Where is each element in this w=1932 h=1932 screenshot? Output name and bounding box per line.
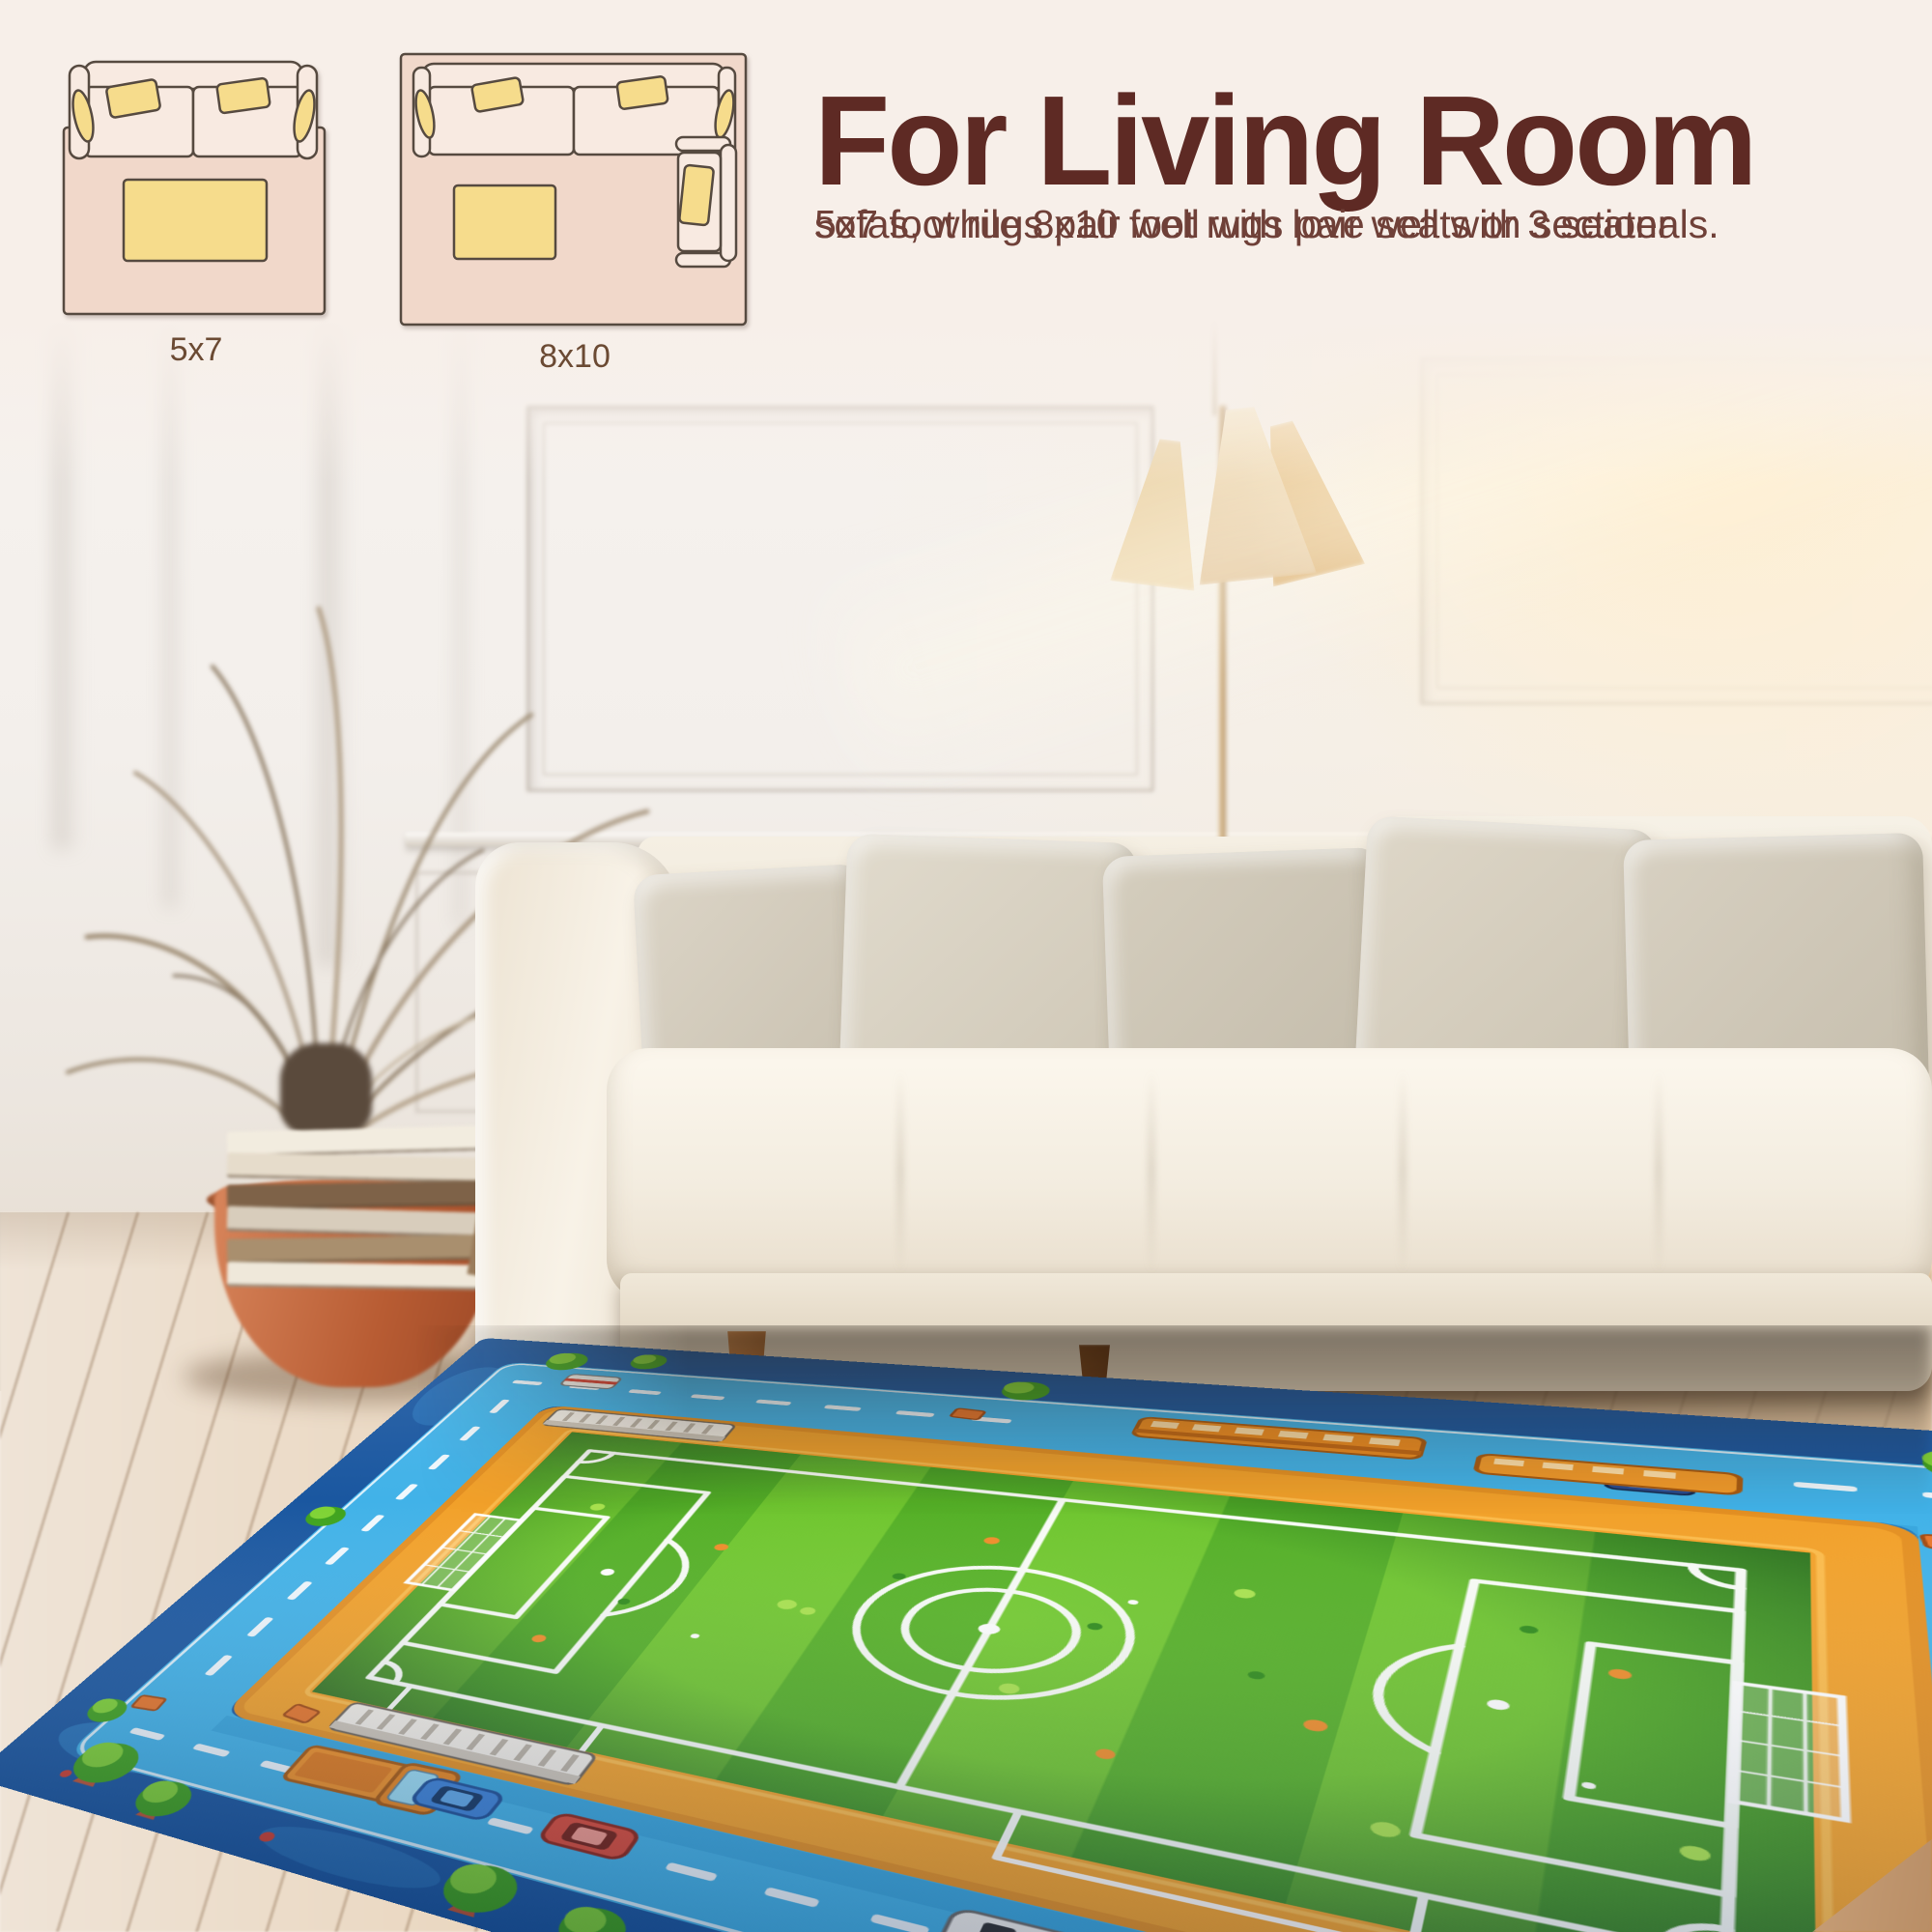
rug-diagram-5x7 — [58, 54, 328, 334]
page-title: For Living Room — [814, 68, 1754, 213]
rug-diagram-8x10 — [396, 44, 750, 334]
diagram-label-5x7: 5x7 — [128, 331, 264, 369]
diagram-label-8x10: 8x10 — [507, 338, 642, 376]
product-image: 8 — [0, 0, 1932, 1932]
rug-shadow — [415, 1325, 1932, 1514]
seat-crease — [1401, 1070, 1405, 1273]
sofa-seat — [607, 1048, 1932, 1301]
info-banner: 5x7 8x10 For Living Room 5x7 — [0, 0, 1932, 386]
description-line-2: sofas, while 8x10 foot rugs pair well wi… — [814, 196, 1719, 253]
armchair-icon — [676, 137, 736, 267]
seat-crease — [1657, 1070, 1661, 1273]
figurine — [280, 1043, 372, 1135]
seat-crease — [898, 1070, 902, 1273]
seat-crease — [1150, 1070, 1153, 1273]
